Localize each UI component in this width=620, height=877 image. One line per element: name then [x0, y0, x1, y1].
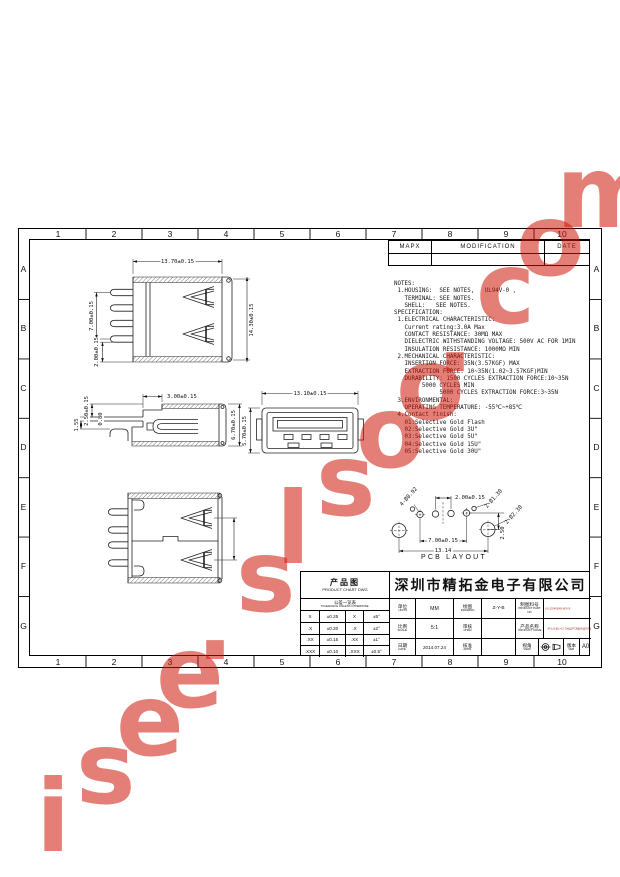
- view-top: [94, 259, 250, 362]
- view-front: [248, 391, 364, 453]
- dim-label-front-width: 13.10±0.15: [292, 391, 327, 397]
- dim-label-side-d2: 0.80: [98, 412, 104, 425]
- dim-label-top-pin-offset: 2.00±0.15: [94, 337, 100, 367]
- dim-label-top-pin-span: 7.00±0.15: [89, 301, 95, 331]
- view-bottom: [109, 493, 238, 583]
- dim-label-side-height: 6.70±0.15: [231, 410, 237, 440]
- dim-label-side-d1: 2.50±0.15: [84, 396, 90, 426]
- drawing-page: MAPX MODIFICATION DATE NOTES: 1.HOUSING:…: [0, 0, 620, 877]
- dim-label-pcb-pin-span: 7.00±0.15: [427, 538, 459, 544]
- dim-label-front-height: 5.70±0.15: [242, 416, 248, 446]
- drawing-linework: [0, 0, 620, 877]
- dim-label-top-width: 13.70±0.15: [160, 259, 195, 265]
- dim-label-side-depth: 3.00±0.15: [166, 394, 198, 400]
- frame-ticks: [18, 228, 602, 668]
- dim-label-pcb-pitch: 2.00±0.15: [454, 495, 486, 501]
- dim-label-pcb-offset: 2.50: [500, 526, 506, 539]
- dim-label-side-d3: 1.55: [74, 418, 80, 431]
- dim-label-top-height: 14.30±0.15: [249, 303, 255, 336]
- pcb-layout-caption: PCB LAYOUT: [421, 554, 487, 561]
